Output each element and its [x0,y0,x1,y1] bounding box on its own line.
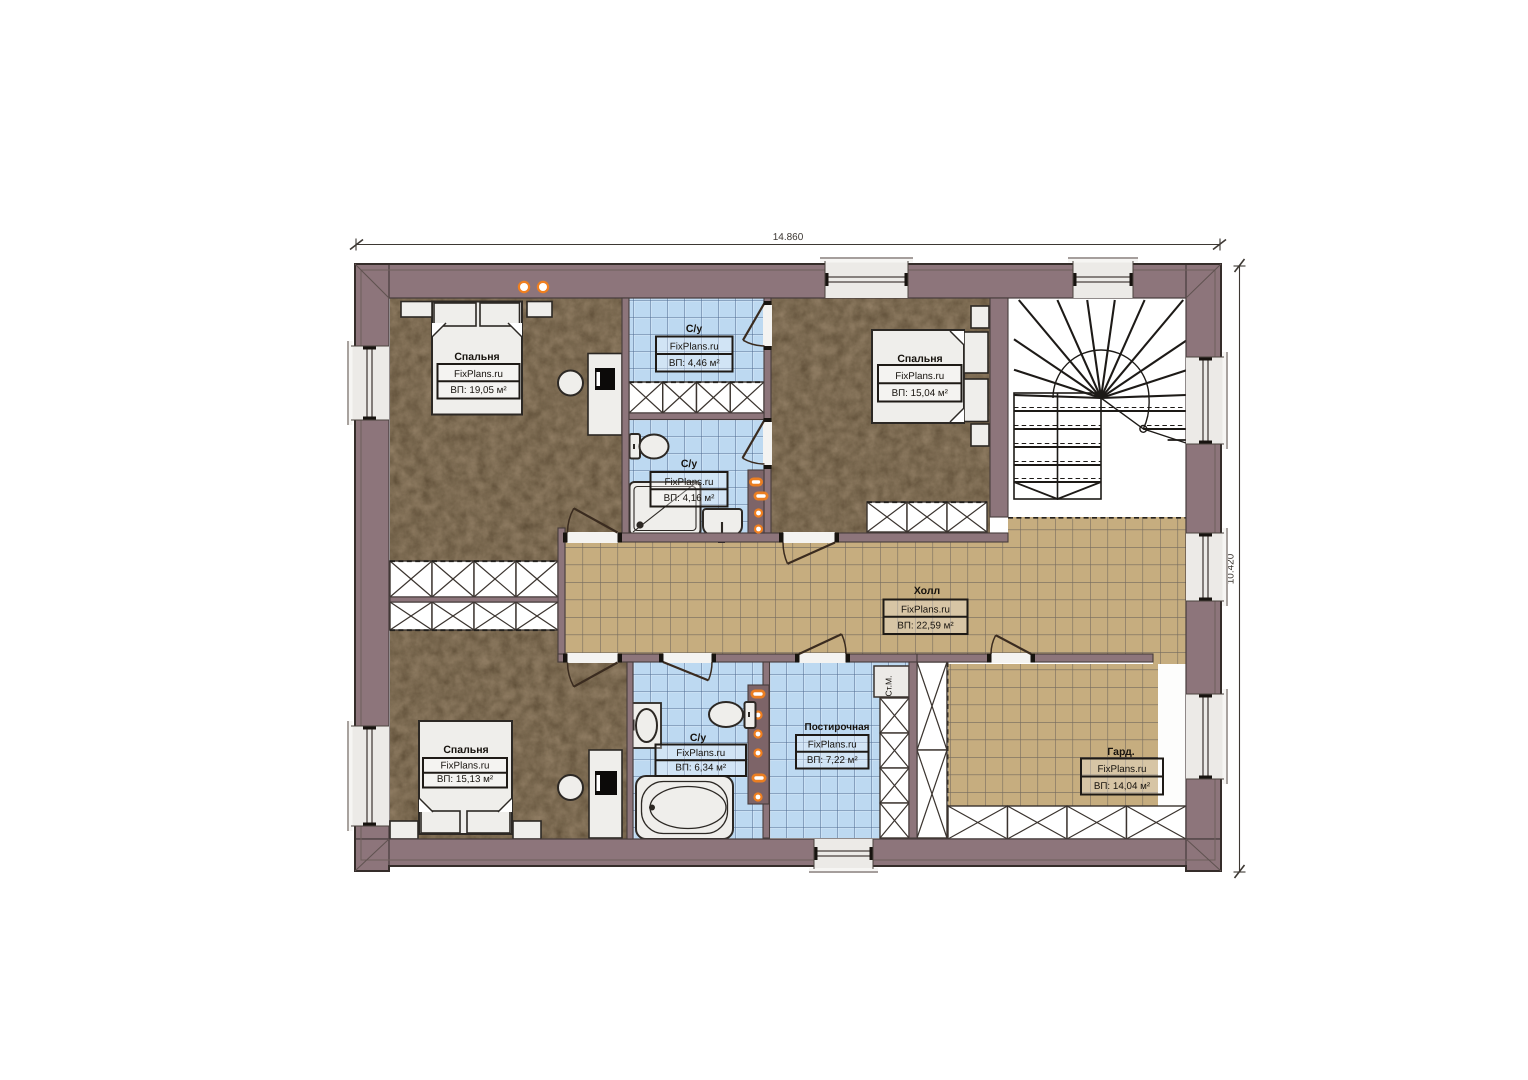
svg-text:С/у: С/у [681,458,698,470]
svg-text:FixPlans.ru: FixPlans.ru [670,342,719,353]
svg-text:FixPlans.ru: FixPlans.ru [454,369,503,380]
svg-text:Спальня: Спальня [454,351,499,363]
svg-text:Спальня: Спальня [897,353,942,365]
svg-text:ВП: 7,22 м²: ВП: 7,22 м² [807,755,859,766]
svg-text:14.860: 14.860 [773,232,804,243]
svg-text:FixPlans.ru: FixPlans.ru [1098,764,1147,775]
svg-text:FixPlans.ru: FixPlans.ru [665,477,714,488]
svg-text:Холл: Холл [914,585,940,597]
svg-text:Постирочная: Постирочная [805,722,870,733]
svg-text:FixPlans.ru: FixPlans.ru [676,748,725,759]
svg-text:ВП: 15,13 м²: ВП: 15,13 м² [437,774,494,785]
svg-text:Ст.М.: Ст.М. [884,676,894,697]
svg-text:ВП: 6,34 м²: ВП: 6,34 м² [675,763,727,774]
svg-text:ВП: 19,05 м²: ВП: 19,05 м² [450,385,507,396]
svg-text:Гард.: Гард. [1107,746,1134,758]
svg-text:FixPlans.ru: FixPlans.ru [901,604,950,615]
svg-text:ВП: 14,04 м²: ВП: 14,04 м² [1094,781,1151,792]
svg-text:FixPlans.ru: FixPlans.ru [808,739,857,750]
svg-text:Спальня: Спальня [443,744,488,756]
svg-text:ВП: 22,59 м²: ВП: 22,59 м² [897,621,954,632]
svg-text:ВП: 4,46 м²: ВП: 4,46 м² [669,358,721,369]
svg-text:FixPlans.ru: FixPlans.ru [441,760,490,771]
svg-text:С/у: С/у [686,323,703,335]
svg-text:С/у: С/у [690,732,707,744]
svg-text:ВП: 15,04 м²: ВП: 15,04 м² [892,388,949,399]
svg-text:ВП: 4,16 м²: ВП: 4,16 м² [664,493,716,504]
svg-text:FixPlans.ru: FixPlans.ru [895,371,944,382]
